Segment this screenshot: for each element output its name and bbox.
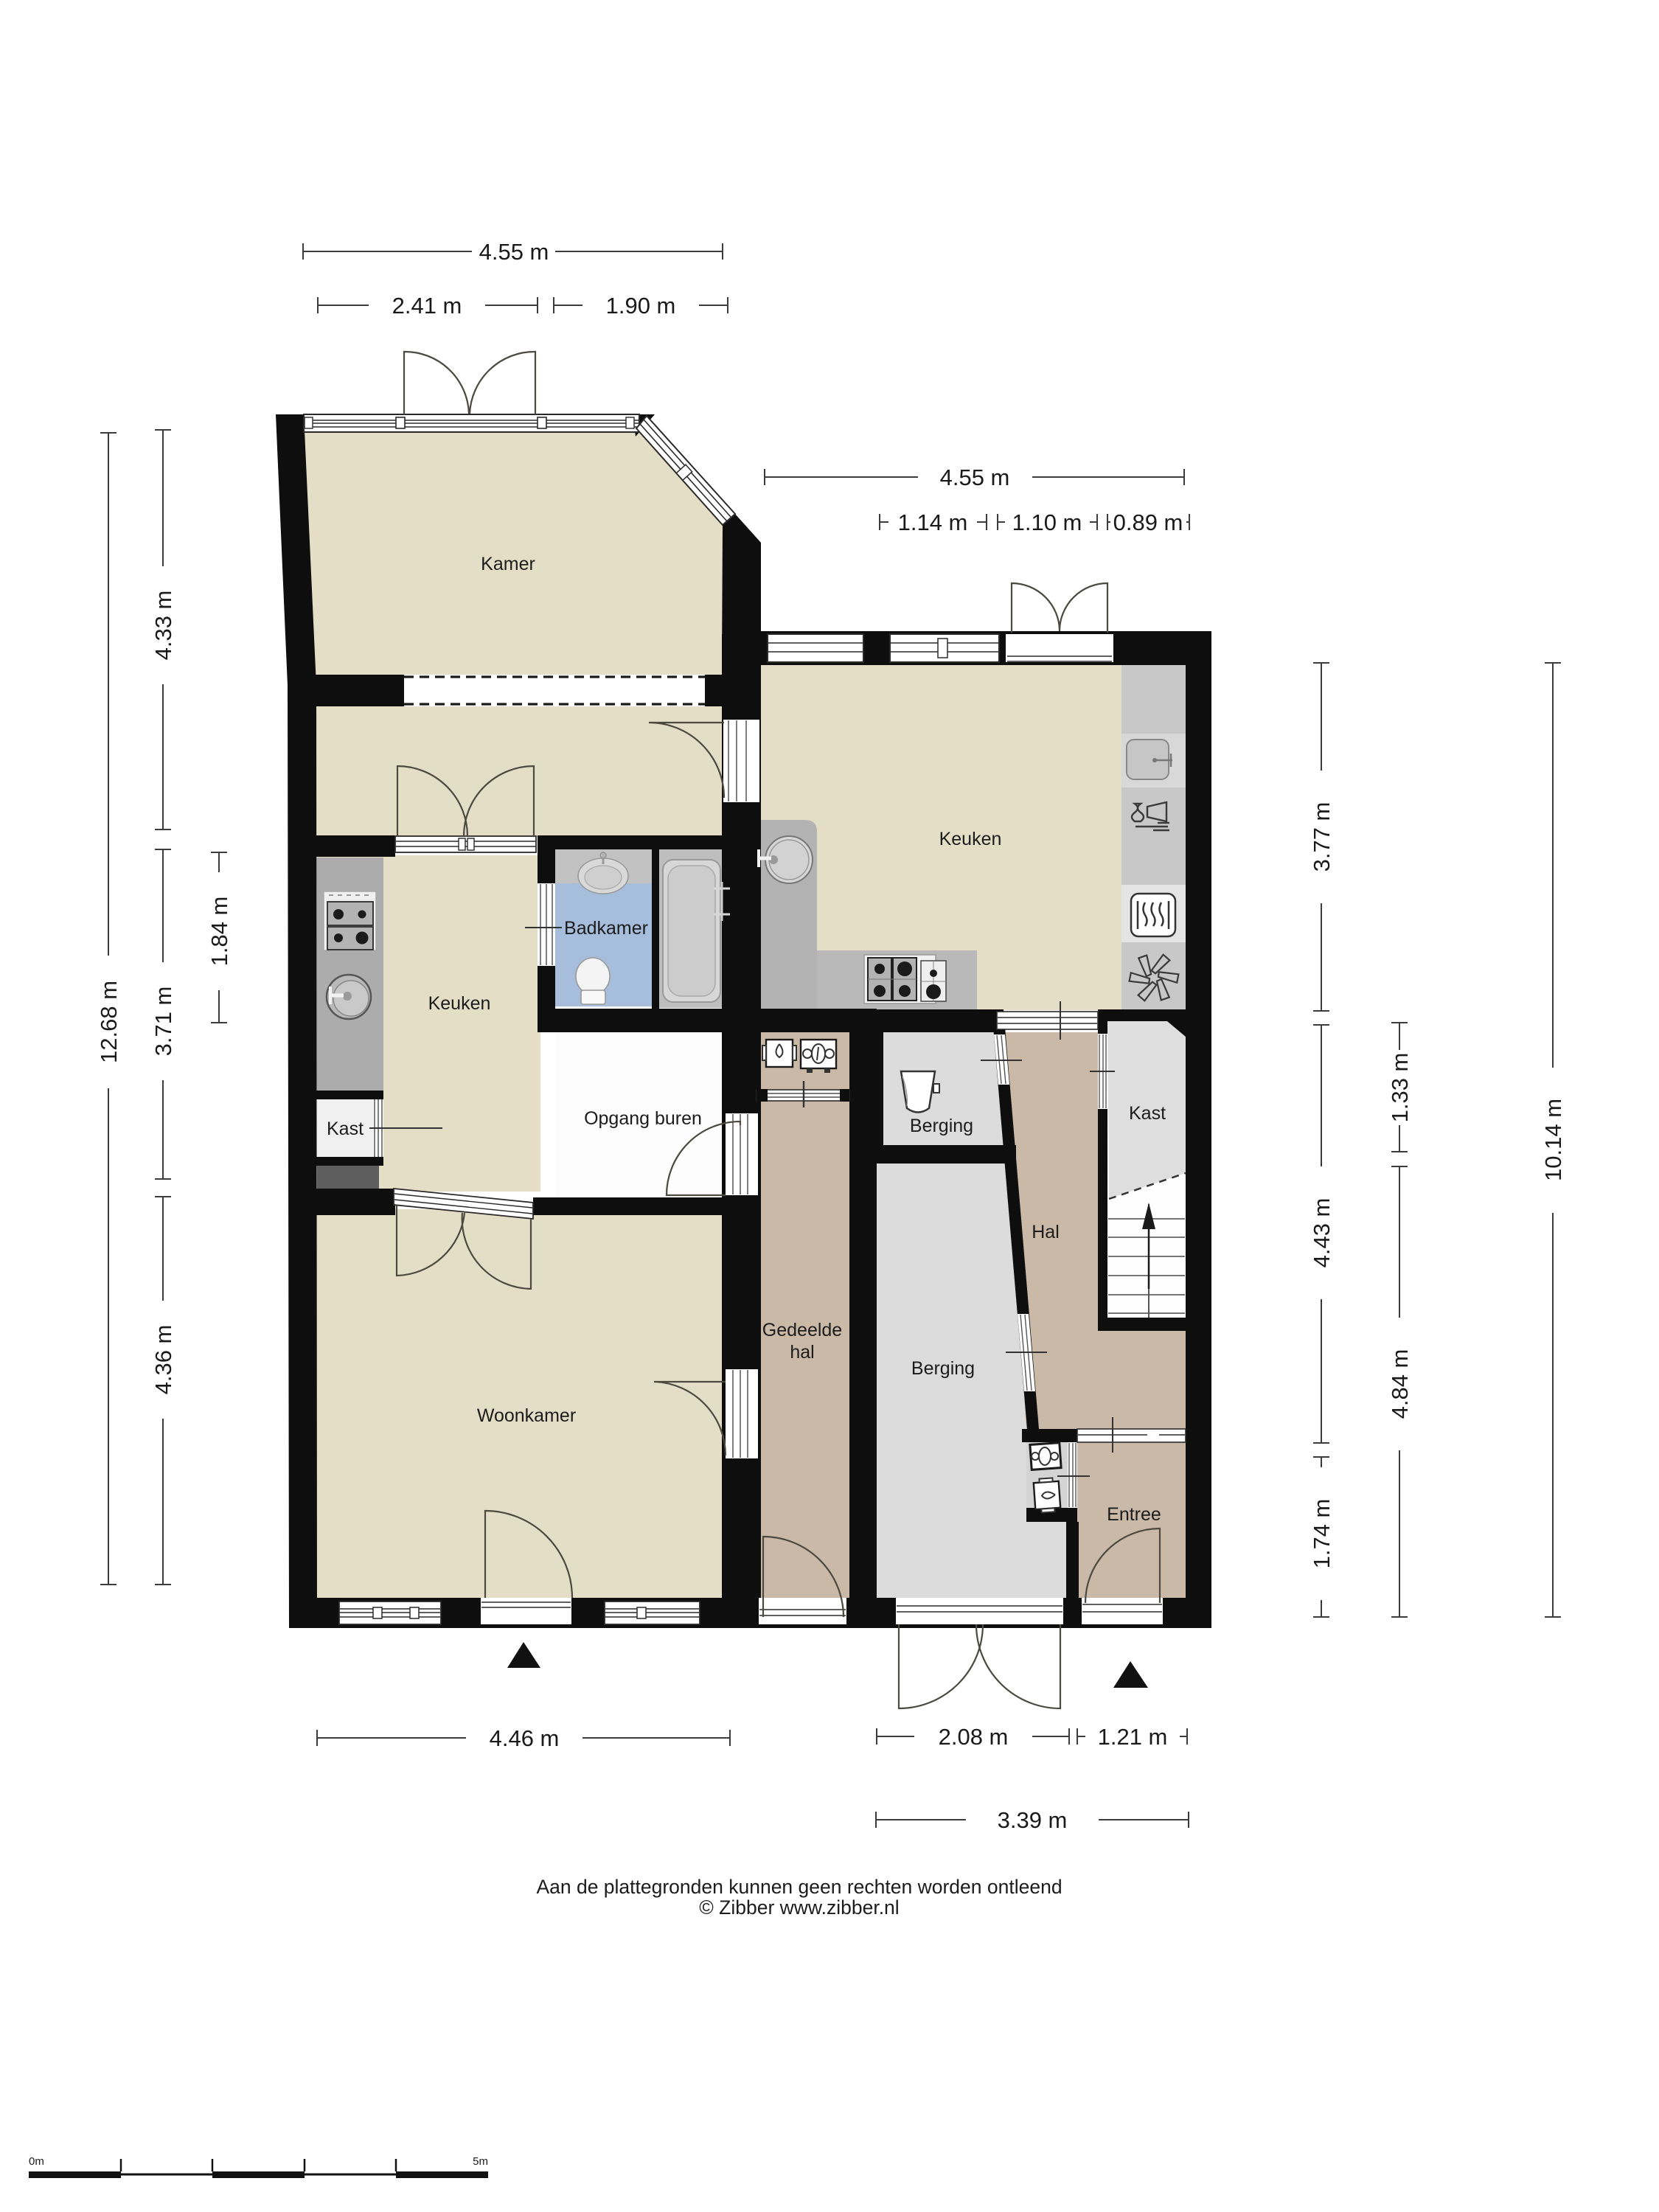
svg-text:4.55 m: 4.55 m [479, 239, 549, 265]
svg-text:Keuken: Keuken [428, 993, 491, 1014]
svg-text:4.84 m: 4.84 m [1387, 1349, 1413, 1419]
svg-text:3.71 m: 3.71 m [150, 987, 176, 1057]
svg-text:4.33 m: 4.33 m [150, 591, 176, 661]
svg-text:1.10 m: 1.10 m [1012, 509, 1082, 535]
svg-text:1.90 m: 1.90 m [606, 293, 676, 319]
svg-text:Opgang buren: Opgang buren [584, 1108, 702, 1129]
svg-text:4.46 m: 4.46 m [490, 1725, 560, 1751]
svg-text:2.41 m: 2.41 m [392, 293, 462, 319]
svg-text:1.14 m: 1.14 m [898, 509, 968, 535]
svg-text:4.36 m: 4.36 m [150, 1325, 176, 1395]
svg-text:Berging: Berging [910, 1116, 973, 1136]
svg-text:1.21 m: 1.21 m [1098, 1724, 1168, 1750]
svg-text:Kast: Kast [1129, 1103, 1166, 1124]
svg-text:4.55 m: 4.55 m [940, 465, 1010, 490]
svg-text:3.77 m: 3.77 m [1309, 802, 1335, 872]
svg-text:10.14 m: 10.14 m [1540, 1099, 1566, 1181]
svg-text:Hal: Hal [1032, 1222, 1060, 1242]
svg-text:0m: 0m [29, 2155, 44, 2168]
svg-text:Berging: Berging [911, 1358, 975, 1379]
svg-text:Badkamer: Badkamer [564, 918, 648, 939]
svg-text:Kamer: Kamer [481, 554, 535, 574]
svg-text:5m: 5m [473, 2155, 488, 2168]
svg-text:4.43 m: 4.43 m [1309, 1198, 1335, 1268]
svg-text:12.68 m: 12.68 m [96, 981, 122, 1063]
svg-text:Keuken: Keuken [939, 829, 1002, 849]
svg-text:Kast: Kast [327, 1119, 364, 1139]
svg-text:Aan de plattegronden kunnen ge: Aan de plattegronden kunnen geen rechten… [536, 1876, 1062, 1898]
svg-text:Woonkamer: Woonkamer [477, 1405, 576, 1426]
svg-text:1.74 m: 1.74 m [1309, 1499, 1335, 1569]
svg-text:0.89 m: 0.89 m [1113, 509, 1183, 535]
svg-text:© Zibber www.zibber.nl: © Zibber www.zibber.nl [699, 1896, 899, 1919]
svg-text:1.84 m: 1.84 m [206, 897, 232, 967]
svg-text:1.33 m: 1.33 m [1387, 1053, 1413, 1123]
svg-text:2.08 m: 2.08 m [939, 1724, 1009, 1750]
svg-text:3.39 m: 3.39 m [998, 1807, 1068, 1833]
svg-text:Entree: Entree [1107, 1504, 1161, 1525]
svg-text:Gedeelde: Gedeelde [762, 1320, 842, 1340]
svg-text:hal: hal [790, 1342, 814, 1363]
